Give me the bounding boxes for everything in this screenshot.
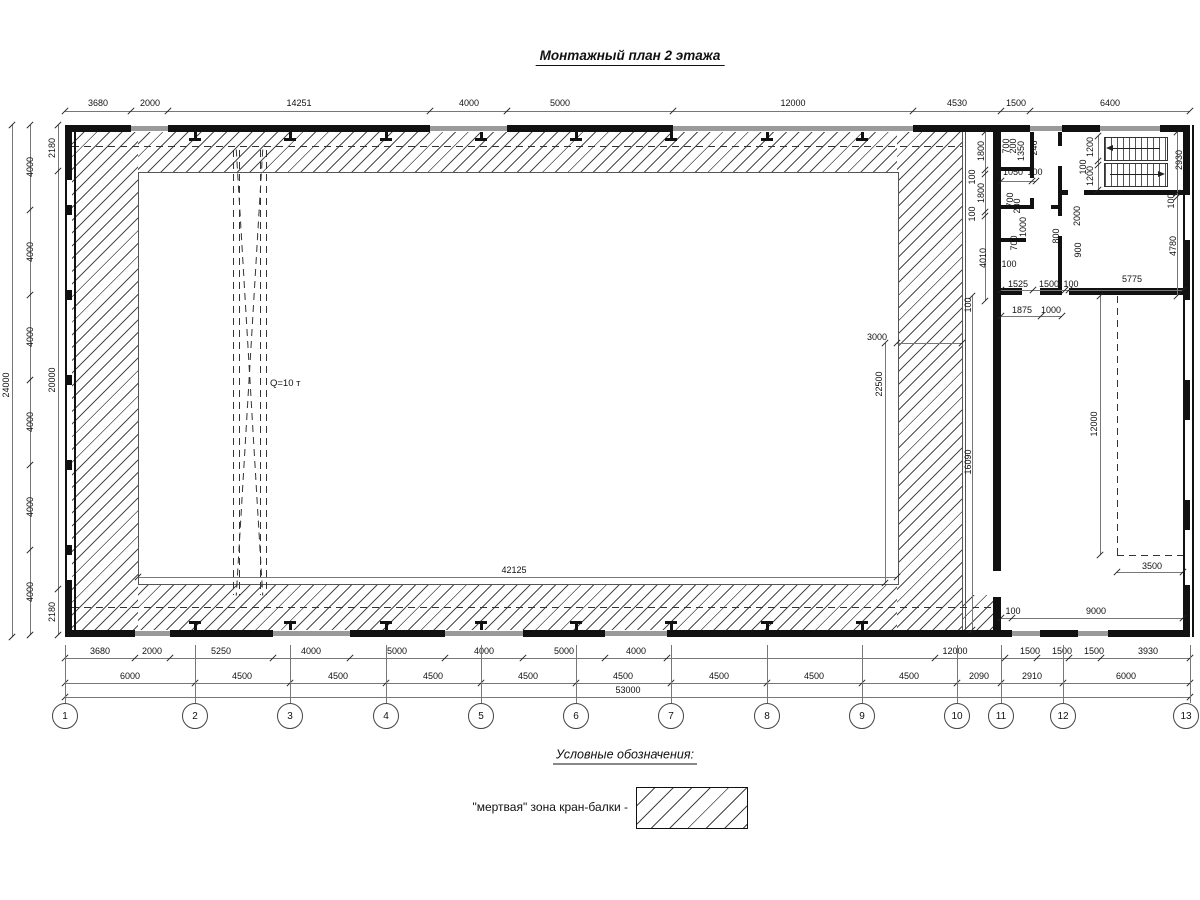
opening-dashed-line (1117, 296, 1118, 555)
dimension-line (1001, 618, 1183, 619)
dimension-label: 4500 (899, 671, 919, 681)
dimension-label: 4000 (25, 497, 35, 517)
dimension-label: 4010 (978, 248, 988, 268)
window-top (1030, 126, 1062, 131)
dimension-label: 1875 (1012, 305, 1032, 315)
dimension-label: 1200 (1085, 166, 1095, 186)
dimension-label: 22500 (874, 371, 884, 396)
dimension-label: 4500 (518, 671, 538, 681)
grid-bubble-12: 12 (1050, 703, 1076, 729)
partition-wall (1058, 132, 1062, 146)
dimension-label: 6000 (120, 671, 140, 681)
wall-bottom (523, 630, 605, 637)
window-bottom (1078, 631, 1108, 636)
column-mark (289, 132, 292, 141)
column-mark (289, 621, 292, 630)
dimension-label: 2910 (1022, 671, 1042, 681)
column-mark (861, 621, 864, 630)
dimension-label: 1525 (1008, 279, 1028, 289)
grid-bubble-9: 9 (849, 703, 875, 729)
dimension-label: 1050 (1003, 167, 1023, 177)
column-mark (194, 621, 197, 630)
dimension-line (1001, 316, 1062, 317)
crane-beam-path (266, 150, 267, 595)
wall-right (1183, 240, 1190, 300)
dimension-label: 6400 (1100, 98, 1120, 108)
column-left (65, 205, 72, 215)
dimension-label: 12000 (1089, 411, 1099, 436)
dimension-label: 100 (963, 297, 973, 312)
grid-bubble-11: 11 (988, 703, 1014, 729)
dimension-tick (54, 631, 61, 638)
crane-capacity-label: Q=10 т (270, 378, 301, 389)
dead-zone-dashed-line (72, 146, 962, 147)
grid-axis-leader (290, 645, 291, 703)
dimension-line (1117, 572, 1183, 573)
dimension-label: 5000 (554, 646, 574, 656)
dimension-tick (981, 297, 988, 304)
column-mark (385, 621, 388, 630)
window-bottom (135, 631, 170, 636)
column-mark (575, 621, 578, 630)
column-mark (670, 132, 673, 141)
dead-zone-top (138, 132, 897, 172)
dimension-line (1001, 290, 1183, 291)
dimension-label: 1800 (976, 183, 986, 203)
dimension-label: 3500 (1142, 561, 1162, 571)
grid-axis-leader (481, 645, 482, 703)
stair-arrowhead (1106, 145, 1113, 151)
dimension-line (12, 125, 13, 637)
dimension-label: 4500 (328, 671, 348, 681)
dimension-label: 800 (1051, 228, 1061, 243)
dimension-label: 900 (1073, 242, 1083, 257)
grid-axis-leader (767, 645, 768, 703)
drawing-sheet: Монтажный план 2 этажа Q=10 т (0, 0, 1200, 900)
stair-arrowhead (1158, 171, 1165, 177)
dimension-label: 5000 (387, 646, 407, 656)
wall-bottom (350, 630, 445, 637)
grid-axis-leader (65, 645, 66, 703)
wall-left (65, 125, 72, 180)
dimension-line (897, 343, 962, 344)
grid-axis-leader (576, 645, 577, 703)
column-left (65, 545, 72, 555)
dimension-label: 4000 (626, 646, 646, 656)
grid-bubble-10: 10 (944, 703, 970, 729)
wall-right (1183, 585, 1190, 637)
dimension-label: 4500 (613, 671, 633, 681)
column-mark (670, 621, 673, 630)
dimension-label: 3930 (1138, 646, 1158, 656)
dimension-label: 4000 (474, 646, 494, 656)
dimension-label: 1000 (1041, 305, 1061, 315)
column-mark (766, 621, 769, 630)
grid-bubble-8: 8 (754, 703, 780, 729)
grid-bubble-6: 6 (563, 703, 589, 729)
dimension-label: 53000 (615, 685, 640, 695)
column-left (65, 375, 72, 385)
dimension-label: 200 (1012, 198, 1022, 213)
wall-right (1183, 500, 1190, 530)
crane-rail-line (962, 132, 963, 630)
grid-axis-leader (957, 645, 958, 703)
dimension-label: 1500 (1039, 279, 1059, 289)
dead-zone-bottom-ext (962, 595, 993, 630)
stair-arrow-down (1110, 174, 1158, 175)
dimension-label: 100 (1063, 279, 1078, 289)
dimension-label: 1500 (1052, 646, 1072, 656)
crane-rail-line (965, 132, 966, 630)
dimension-line (65, 111, 1190, 112)
dimension-tick (1186, 107, 1193, 114)
dimension-label: 2000 (1072, 206, 1082, 226)
grid-axis-leader (862, 645, 863, 703)
grid-bubble-5: 5 (468, 703, 494, 729)
dimension-label: 100 (1166, 193, 1176, 208)
dimension-label: 5250 (211, 646, 231, 656)
dimension-tick (1096, 551, 1103, 558)
wall-bottom (667, 630, 1012, 637)
dimension-label: 2180 (47, 138, 57, 158)
dimension-label: 4500 (232, 671, 252, 681)
dimension-label: 12000 (780, 98, 805, 108)
wall-right (1183, 380, 1190, 420)
window-bottom (605, 631, 667, 636)
grid-bubble-1: 1 (52, 703, 78, 729)
dimension-label: 5775 (1122, 274, 1142, 284)
dimension-label: 4000 (25, 242, 35, 262)
dimension-label: 246 (1029, 140, 1039, 155)
dimension-label: 4000 (25, 412, 35, 432)
window-top (430, 126, 507, 131)
legend-item-label: "мертвая" зона кран-балки - (472, 800, 628, 814)
dimension-label: 2930 (1174, 150, 1184, 170)
dimension-line (58, 125, 59, 635)
dead-zone-dashed-line (72, 607, 993, 608)
column-mark (575, 132, 578, 141)
dimension-label: 100 (1005, 606, 1020, 616)
dimension-label: 1800 (976, 141, 986, 161)
dimension-label: 1500 (1006, 98, 1026, 108)
dimension-label: 4500 (804, 671, 824, 681)
wall-top (913, 125, 1030, 132)
dimension-label: 12000 (942, 646, 967, 656)
dimension-label: 42125 (501, 565, 526, 575)
dimension-label: 2000 (140, 98, 160, 108)
wall-top (507, 125, 673, 132)
dimension-label: 4000 (25, 157, 35, 177)
stair-wall (1058, 190, 1068, 195)
dimension-tick (26, 631, 33, 638)
column-left (65, 460, 72, 470)
window-bottom (1012, 631, 1040, 636)
wall-right (1183, 125, 1190, 195)
grid-axis-leader (195, 645, 196, 703)
dead-zone-right (897, 132, 962, 630)
grid-bubble-13: 13 (1173, 703, 1199, 729)
legend-hatch-swatch (636, 787, 748, 829)
grid-axis-leader (1063, 645, 1064, 703)
window-bottom (273, 631, 350, 636)
dimension-tick (8, 633, 15, 640)
window-bottom (445, 631, 523, 636)
dimension-label: 4000 (25, 582, 35, 602)
dimension-label: 3000 (867, 332, 887, 342)
partition-wall (1030, 198, 1034, 209)
column-mark (194, 132, 197, 141)
dimension-label: 1000 (1018, 217, 1028, 237)
grid-bubble-4: 4 (373, 703, 399, 729)
dimension-label: 4500 (709, 671, 729, 681)
dimension-label: 1350 (1016, 141, 1026, 161)
wall-separator (993, 125, 1001, 571)
dimension-label: 4000 (25, 327, 35, 347)
window-top (131, 126, 168, 131)
opening-dashed-line (1117, 555, 1183, 556)
dimension-label: 1200 (1085, 137, 1095, 157)
wall-bottom (1108, 630, 1190, 637)
wall-bottom (1040, 630, 1078, 637)
dimension-label: 4500 (423, 671, 443, 681)
column-mark (385, 132, 388, 141)
column-mark (861, 132, 864, 141)
column-mark (480, 621, 483, 630)
dimension-label: 700 (1009, 235, 1019, 250)
dimension-line (65, 658, 1190, 659)
dimension-label: 20000 (47, 367, 57, 392)
plan-title: Монтажный план 2 этажа (536, 48, 725, 66)
dimension-line (885, 343, 886, 583)
column-mark (480, 132, 483, 141)
dimension-label: 2090 (969, 671, 989, 681)
dimension-label: 4000 (459, 98, 479, 108)
crane-beam-path (260, 150, 261, 595)
dimension-label: 3680 (88, 98, 108, 108)
grid-bubble-3: 3 (277, 703, 303, 729)
wall-bottom (170, 630, 273, 637)
dimension-label: 14251 (286, 98, 311, 108)
dimension-label: 4000 (301, 646, 321, 656)
grid-axis-leader (671, 645, 672, 703)
dimension-label: 3680 (90, 646, 110, 656)
dead-zone-left (72, 132, 138, 630)
stair-arrow-up (1112, 148, 1160, 149)
grid-bubble-7: 7 (658, 703, 684, 729)
dimension-label: 2000 (142, 646, 162, 656)
legend-heading: Условные обозначения: (553, 748, 697, 765)
column-mark (766, 132, 769, 141)
dimension-label: 1500 (1020, 646, 1040, 656)
dimension-label: 24000 (1, 372, 11, 397)
dimension-label: 1500 (1084, 646, 1104, 656)
dimension-label: 100 (1027, 167, 1042, 177)
stair-flight-upper (1104, 137, 1168, 161)
dimension-label: 2180 (47, 602, 57, 622)
dimension-line (1100, 296, 1101, 555)
dimension-label: 5000 (550, 98, 570, 108)
dimension-label: 9000 (1086, 606, 1106, 616)
window-top (1100, 126, 1160, 131)
dimension-line (65, 683, 1190, 684)
grid-axis-leader (1001, 645, 1002, 703)
crane-beam-path (233, 150, 234, 595)
wall-top (168, 125, 430, 132)
wall-left (65, 580, 72, 637)
dimension-label: 4780 (1168, 236, 1178, 256)
column-left (65, 290, 72, 300)
grid-bubble-2: 2 (182, 703, 208, 729)
dimension-line (65, 697, 1190, 698)
window-top (673, 126, 913, 131)
dimension-label: 100 (1001, 259, 1016, 269)
wall-top (1062, 125, 1100, 132)
dimension-label: 4530 (947, 98, 967, 108)
grid-axis-leader (386, 645, 387, 703)
grid-axis-leader (1190, 645, 1191, 703)
dimension-label: 16090 (963, 449, 973, 474)
dimension-label: 100 (967, 206, 977, 221)
dimension-line (138, 577, 897, 578)
crane-coverage-area (138, 172, 899, 585)
dimension-label: 6000 (1116, 671, 1136, 681)
